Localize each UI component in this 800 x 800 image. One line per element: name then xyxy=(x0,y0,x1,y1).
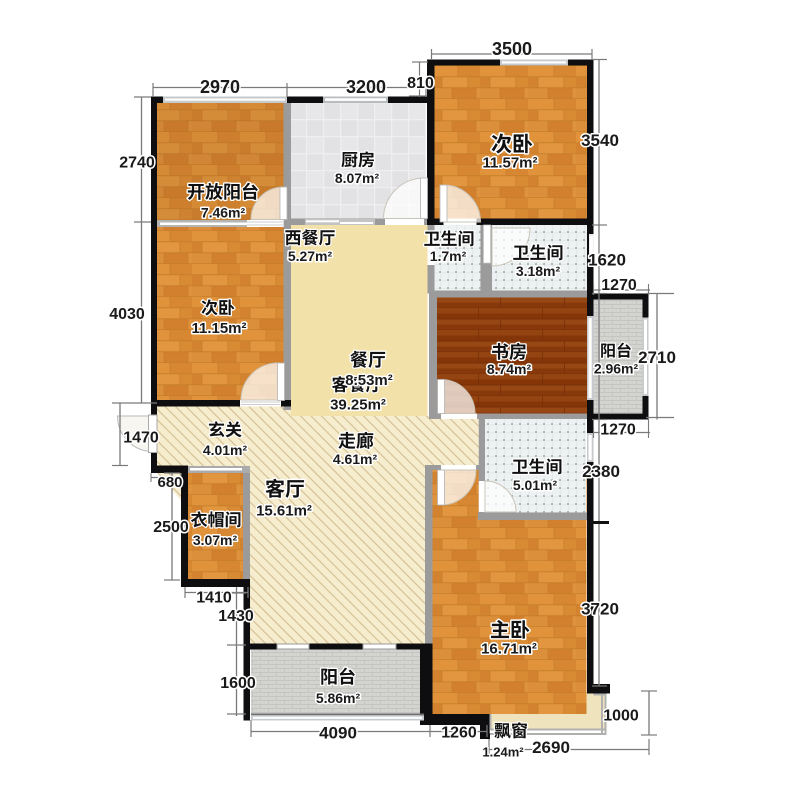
svg-text:2690: 2690 xyxy=(532,738,570,757)
svg-text:2740: 2740 xyxy=(119,154,155,171)
svg-text:680: 680 xyxy=(157,474,182,491)
svg-text:4090: 4090 xyxy=(319,724,357,743)
svg-text:4030: 4030 xyxy=(109,306,145,323)
svg-text:1270: 1270 xyxy=(600,421,636,438)
svg-text:5.01m²: 5.01m² xyxy=(513,477,558,493)
svg-text:5.27m²: 5.27m² xyxy=(288,248,333,264)
svg-text:2710: 2710 xyxy=(638,348,676,367)
svg-text:4.01m²: 4.01m² xyxy=(203,442,248,458)
svg-text:3.07m²: 3.07m² xyxy=(193,532,238,548)
svg-text:15.61m²: 15.61m² xyxy=(256,502,312,519)
svg-text:2.96m²: 2.96m² xyxy=(594,361,639,377)
svg-text:4.61m²: 4.61m² xyxy=(333,451,378,467)
svg-text:11.57m²: 11.57m² xyxy=(482,154,537,171)
svg-text:1.24m²: 1.24m² xyxy=(482,745,524,760)
svg-text:2500: 2500 xyxy=(153,519,189,536)
svg-text:3540: 3540 xyxy=(581,131,619,150)
svg-text:1430: 1430 xyxy=(218,608,254,625)
svg-text:1270: 1270 xyxy=(601,277,637,294)
svg-text:8.74m²: 8.74m² xyxy=(487,361,532,377)
svg-text:3720: 3720 xyxy=(581,600,619,619)
svg-text:3500: 3500 xyxy=(492,39,532,59)
svg-text:810: 810 xyxy=(407,75,434,92)
svg-text:1260: 1260 xyxy=(441,724,477,741)
svg-text:2380: 2380 xyxy=(582,462,620,481)
svg-text:8.07m²: 8.07m² xyxy=(335,170,380,186)
svg-text:1410: 1410 xyxy=(196,589,232,606)
svg-text:2970: 2970 xyxy=(200,77,240,97)
svg-text:3.18m²: 3.18m² xyxy=(516,263,561,279)
svg-text:1470: 1470 xyxy=(123,429,159,446)
svg-text:11.15m²: 11.15m² xyxy=(191,320,246,337)
svg-text:1000: 1000 xyxy=(603,707,639,724)
svg-text:16.71m²: 16.71m² xyxy=(481,640,537,657)
svg-text:1600: 1600 xyxy=(220,675,256,692)
svg-text:39.25m²: 39.25m² xyxy=(330,396,386,413)
svg-text:7.46m²: 7.46m² xyxy=(201,205,246,221)
svg-text:8.53m²: 8.53m² xyxy=(345,372,393,389)
svg-text:5.86m²: 5.86m² xyxy=(316,690,361,706)
svg-text:3200: 3200 xyxy=(346,77,386,97)
svg-text:1620: 1620 xyxy=(588,251,626,270)
svg-text:1.7m²: 1.7m² xyxy=(430,248,467,264)
